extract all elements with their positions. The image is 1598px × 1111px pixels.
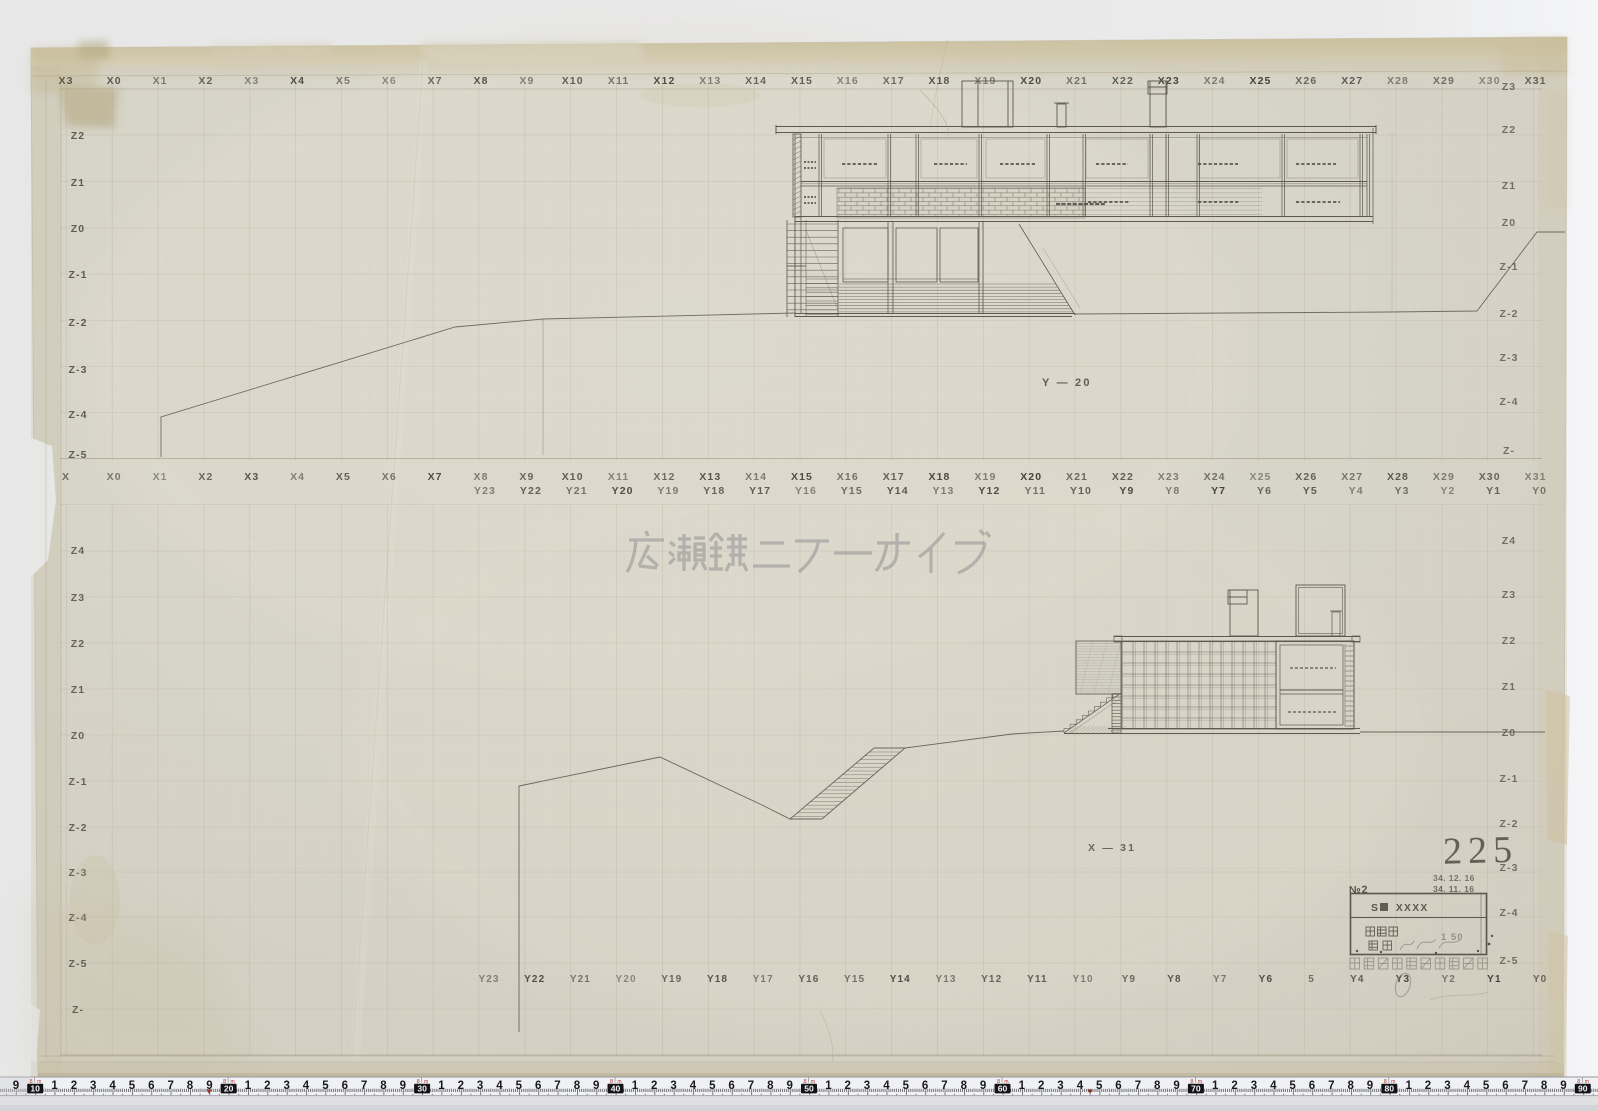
- svg-text:9: 9: [13, 1080, 19, 1092]
- svg-text:Y2: Y2: [1441, 974, 1455, 985]
- svg-text:6: 6: [1309, 1080, 1315, 1092]
- svg-text:6: 6: [922, 1080, 928, 1092]
- svg-text:34. 11. 16: 34. 11. 16: [1433, 884, 1474, 894]
- svg-text:1: 1: [1405, 1080, 1412, 1092]
- svg-text:2: 2: [1231, 1080, 1237, 1092]
- svg-text:X9: X9: [519, 75, 534, 87]
- svg-text:Z1: Z1: [71, 684, 85, 696]
- svg-text:X11: X11: [608, 471, 629, 483]
- svg-text:Y7: Y7: [1213, 974, 1227, 985]
- svg-text:Y6: Y6: [1259, 974, 1273, 985]
- svg-text:3: 3: [477, 1080, 483, 1092]
- svg-text:4: 4: [109, 1080, 116, 1092]
- svg-text:Y16: Y16: [795, 485, 817, 497]
- svg-text:3: 3: [1444, 1080, 1450, 1092]
- svg-text:X9: X9: [519, 471, 534, 483]
- svg-text:Y6: Y6: [1257, 485, 1272, 497]
- svg-text:7: 7: [1328, 1080, 1334, 1092]
- svg-text:7: 7: [554, 1080, 560, 1092]
- svg-text:X16: X16: [837, 75, 859, 87]
- svg-text:X2: X2: [198, 471, 213, 483]
- svg-text:2: 2: [844, 1080, 850, 1092]
- svg-text:Z-2: Z-2: [1499, 308, 1518, 320]
- svg-text:8: 8: [1154, 1080, 1161, 1092]
- svg-text:5: 5: [322, 1080, 329, 1092]
- svg-text:Y0: Y0: [1532, 485, 1547, 497]
- svg-text:Z-3: Z-3: [1499, 352, 1518, 364]
- svg-text:1: 1: [1212, 1080, 1219, 1092]
- svg-text:Z0: Z0: [71, 730, 85, 742]
- svg-text:X3: X3: [244, 75, 259, 87]
- svg-text:X17: X17: [883, 471, 905, 483]
- svg-text:Y21: Y21: [570, 974, 591, 985]
- svg-text:X7: X7: [428, 75, 443, 87]
- svg-text:XXXX: XXXX: [1396, 903, 1429, 914]
- svg-text:10: 10: [30, 1084, 40, 1094]
- svg-text:Y19: Y19: [657, 485, 679, 497]
- svg-text:7: 7: [941, 1080, 947, 1092]
- svg-text:Z1: Z1: [1502, 180, 1516, 192]
- svg-text:Z2: Z2: [71, 130, 85, 142]
- svg-text:2: 2: [458, 1080, 464, 1092]
- svg-text:X: X: [62, 471, 70, 483]
- svg-text:X21: X21: [1066, 75, 1088, 87]
- svg-text:Y15: Y15: [844, 974, 865, 985]
- svg-text:3: 3: [1057, 1080, 1063, 1092]
- svg-text:X20: X20: [1020, 471, 1042, 483]
- svg-text:X28: X28: [1387, 471, 1409, 483]
- svg-text:Y10: Y10: [1073, 974, 1094, 985]
- svg-text:№2: №2: [1349, 884, 1369, 897]
- svg-text:4: 4: [1077, 1080, 1084, 1092]
- svg-text:X18: X18: [929, 471, 951, 483]
- svg-text:Y1: Y1: [1486, 485, 1501, 497]
- svg-text:9: 9: [593, 1080, 599, 1092]
- svg-text:6: 6: [148, 1080, 154, 1092]
- svg-text:6: 6: [535, 1080, 541, 1092]
- svg-text:Z4: Z4: [71, 545, 85, 557]
- svg-text:X22: X22: [1112, 471, 1134, 483]
- svg-text:Y4: Y4: [1349, 485, 1364, 497]
- svg-text:2: 2: [651, 1080, 657, 1092]
- svg-text:Y4: Y4: [1350, 974, 1364, 985]
- svg-text:X3: X3: [58, 75, 73, 87]
- svg-text:X11: X11: [608, 75, 629, 87]
- svg-text:X29: X29: [1433, 471, 1455, 483]
- svg-text:Y17: Y17: [753, 974, 774, 985]
- svg-text:4: 4: [496, 1080, 503, 1092]
- svg-text:X1: X1: [153, 75, 168, 87]
- svg-text:Y18: Y18: [707, 974, 728, 985]
- svg-text:6: 6: [1115, 1080, 1121, 1092]
- svg-text:Y18: Y18: [703, 485, 725, 497]
- svg-text:1 50: 1 50: [1441, 932, 1464, 943]
- svg-text:Y12: Y12: [978, 485, 1000, 497]
- svg-text:X7: X7: [428, 471, 443, 483]
- svg-text:X22: X22: [1112, 75, 1134, 87]
- svg-text:Z-2: Z-2: [68, 317, 87, 329]
- svg-text:7: 7: [748, 1080, 754, 1092]
- svg-text:Z0: Z0: [1502, 727, 1516, 739]
- svg-text:7: 7: [1522, 1080, 1528, 1092]
- svg-text:Y9: Y9: [1119, 485, 1134, 497]
- svg-text:1: 1: [825, 1080, 832, 1092]
- svg-text:5: 5: [516, 1080, 523, 1092]
- svg-text:8: 8: [767, 1080, 774, 1092]
- svg-text:Z-: Z-: [72, 1004, 84, 1016]
- svg-text:60: 60: [998, 1084, 1008, 1094]
- svg-text:X20: X20: [1020, 75, 1042, 87]
- svg-text:Z2: Z2: [71, 638, 85, 650]
- svg-text:X5: X5: [336, 75, 351, 87]
- svg-text:9: 9: [786, 1080, 792, 1092]
- svg-text:Y19: Y19: [661, 974, 682, 985]
- svg-text:X4: X4: [290, 471, 305, 483]
- svg-text:X18: X18: [929, 75, 951, 87]
- svg-text:50: 50: [804, 1084, 814, 1094]
- svg-text:4: 4: [303, 1080, 310, 1092]
- svg-text:3: 3: [1251, 1080, 1257, 1092]
- svg-text:80: 80: [1385, 1084, 1395, 1094]
- svg-text:Z-2: Z-2: [68, 822, 87, 834]
- svg-text:Y14: Y14: [890, 974, 911, 985]
- svg-text:Y3: Y3: [1394, 485, 1409, 497]
- svg-text:3: 3: [864, 1080, 870, 1092]
- svg-text:1: 1: [1019, 1080, 1026, 1092]
- svg-text:2: 2: [1425, 1080, 1431, 1092]
- svg-text:Z-4: Z-4: [68, 409, 87, 421]
- svg-text:Z3: Z3: [1502, 81, 1516, 93]
- svg-text:X5: X5: [336, 471, 351, 483]
- svg-text:5: 5: [1096, 1080, 1103, 1092]
- svg-text:4: 4: [1464, 1080, 1471, 1092]
- svg-text:Z-1: Z-1: [1499, 261, 1518, 273]
- svg-text:Z1: Z1: [71, 177, 85, 189]
- svg-text:X23: X23: [1158, 471, 1180, 483]
- svg-text:7: 7: [167, 1080, 173, 1092]
- svg-text:6: 6: [1502, 1080, 1508, 1092]
- svg-text:Y11: Y11: [1024, 485, 1045, 497]
- svg-text:9: 9: [1367, 1080, 1373, 1092]
- svg-text:90: 90: [1578, 1084, 1588, 1094]
- svg-text:Z-1: Z-1: [68, 269, 87, 281]
- svg-text:Y13: Y13: [935, 974, 956, 985]
- svg-text:X13: X13: [699, 471, 721, 483]
- svg-text:S: S: [1371, 902, 1379, 914]
- svg-text:30: 30: [417, 1084, 427, 1094]
- svg-text:X2: X2: [198, 75, 213, 87]
- svg-text:Y1: Y1: [1487, 974, 1501, 985]
- svg-text:Z3: Z3: [71, 592, 85, 604]
- svg-text:1: 1: [438, 1080, 445, 1092]
- svg-text:Z-4: Z-4: [1499, 907, 1518, 919]
- svg-text:X4: X4: [290, 75, 305, 87]
- svg-text:X31: X31: [1525, 471, 1547, 483]
- svg-text:3: 3: [90, 1080, 96, 1092]
- svg-text:8: 8: [1347, 1080, 1354, 1092]
- svg-text:3: 3: [283, 1080, 289, 1092]
- svg-text:4: 4: [690, 1080, 697, 1092]
- svg-text:X26: X26: [1295, 471, 1317, 483]
- svg-text:X31: X31: [1525, 75, 1547, 87]
- svg-text:8: 8: [187, 1080, 194, 1092]
- svg-text:X15: X15: [791, 75, 813, 87]
- svg-text:8: 8: [380, 1080, 387, 1092]
- svg-text:X24: X24: [1204, 471, 1226, 483]
- svg-text:225: 225: [1442, 829, 1518, 873]
- svg-text:Z-5: Z-5: [1499, 955, 1518, 967]
- svg-text:Z-4: Z-4: [1499, 396, 1518, 408]
- svg-text:9: 9: [980, 1080, 986, 1092]
- svg-text:X19: X19: [974, 471, 996, 483]
- svg-text:4: 4: [1270, 1080, 1277, 1092]
- svg-text:Y20: Y20: [616, 974, 637, 985]
- svg-text:X8: X8: [473, 75, 488, 87]
- svg-text:X8: X8: [473, 471, 488, 483]
- svg-text:X26: X26: [1295, 75, 1317, 87]
- svg-text:Y10: Y10: [1070, 485, 1092, 497]
- svg-text:Y7: Y7: [1211, 485, 1226, 497]
- svg-text:X10: X10: [562, 75, 584, 87]
- svg-text:1: 1: [51, 1080, 58, 1092]
- svg-text:Y8: Y8: [1165, 485, 1180, 497]
- svg-text:2: 2: [71, 1080, 77, 1092]
- svg-text:X29: X29: [1433, 75, 1455, 87]
- svg-text:X30: X30: [1479, 471, 1501, 483]
- svg-text:5: 5: [1308, 974, 1315, 985]
- svg-text:5: 5: [1289, 1080, 1296, 1092]
- svg-text:Z-1: Z-1: [1499, 773, 1518, 785]
- svg-text:6: 6: [728, 1080, 734, 1092]
- svg-text:Y22: Y22: [524, 974, 545, 985]
- svg-text:Z-: Z-: [1503, 445, 1515, 457]
- svg-text:X28: X28: [1387, 75, 1409, 87]
- svg-text:3: 3: [670, 1080, 676, 1092]
- svg-text:20: 20: [224, 1084, 234, 1094]
- svg-text:X14: X14: [745, 75, 767, 87]
- svg-text:Y22: Y22: [520, 485, 542, 497]
- svg-text:2: 2: [264, 1080, 270, 1092]
- svg-text:6: 6: [342, 1080, 348, 1092]
- svg-text:Y14: Y14: [887, 485, 909, 497]
- svg-text:X25: X25: [1250, 471, 1272, 483]
- svg-text:4: 4: [883, 1080, 890, 1092]
- svg-text:Y0: Y0: [1533, 974, 1547, 985]
- svg-text:X10: X10: [562, 471, 584, 483]
- svg-text:40: 40: [611, 1084, 621, 1094]
- svg-text:X16: X16: [837, 471, 859, 483]
- svg-text:Y — 20: Y — 20: [1042, 377, 1092, 389]
- svg-text:Y2: Y2: [1440, 485, 1455, 497]
- svg-text:34. 12. 16: 34. 12. 16: [1433, 873, 1475, 883]
- svg-text:X24: X24: [1204, 75, 1226, 87]
- svg-text:Y16: Y16: [798, 974, 819, 985]
- svg-text:Y12: Y12: [981, 974, 1002, 985]
- svg-text:Y17: Y17: [749, 485, 771, 497]
- svg-text:X12: X12: [653, 471, 675, 483]
- svg-text:8: 8: [574, 1080, 581, 1092]
- svg-text:5: 5: [129, 1080, 136, 1092]
- svg-text:Z4: Z4: [1502, 535, 1516, 547]
- svg-text:1: 1: [632, 1080, 639, 1092]
- svg-text:Y23: Y23: [474, 485, 496, 497]
- svg-text:Z0: Z0: [1502, 217, 1516, 229]
- svg-text:9: 9: [400, 1080, 406, 1092]
- svg-text:X17: X17: [883, 75, 905, 87]
- svg-text:X30: X30: [1479, 75, 1501, 87]
- svg-text:8: 8: [961, 1080, 968, 1092]
- svg-text:X0: X0: [107, 471, 122, 483]
- svg-text:1: 1: [245, 1080, 252, 1092]
- svg-text:Z0: Z0: [71, 223, 85, 235]
- svg-text:Z2: Z2: [1502, 635, 1516, 647]
- svg-text:X — 31: X — 31: [1088, 842, 1136, 854]
- svg-text:Z-5: Z-5: [68, 958, 87, 970]
- svg-text:Y5: Y5: [1303, 485, 1318, 497]
- svg-text:Y15: Y15: [841, 485, 863, 497]
- svg-text:X0: X0: [107, 75, 122, 87]
- svg-text:9: 9: [1173, 1080, 1179, 1092]
- svg-text:X3: X3: [244, 471, 259, 483]
- svg-text:Z2: Z2: [1502, 124, 1516, 136]
- svg-text:Y8: Y8: [1167, 974, 1181, 985]
- svg-text:X15: X15: [791, 471, 813, 483]
- svg-text:Y9: Y9: [1122, 974, 1136, 985]
- svg-text:8: 8: [1541, 1080, 1548, 1092]
- svg-text:Z-1: Z-1: [68, 776, 87, 788]
- svg-text:Z-5: Z-5: [68, 449, 87, 461]
- svg-text:X1: X1: [153, 471, 168, 483]
- svg-text:X25: X25: [1250, 75, 1272, 87]
- svg-text:7: 7: [1135, 1080, 1141, 1092]
- svg-text:Z1: Z1: [1502, 681, 1516, 693]
- svg-text:2: 2: [1038, 1080, 1044, 1092]
- svg-text:X27: X27: [1341, 75, 1363, 87]
- svg-text:X21: X21: [1066, 471, 1088, 483]
- svg-text:7: 7: [361, 1080, 367, 1092]
- svg-text:Y23: Y23: [478, 974, 499, 985]
- svg-text:Z3: Z3: [1502, 589, 1516, 601]
- svg-text:5: 5: [1483, 1080, 1490, 1092]
- svg-text:X6: X6: [382, 75, 397, 87]
- svg-text:Y13: Y13: [933, 485, 955, 497]
- svg-text:Z-3: Z-3: [68, 364, 87, 376]
- svg-text:70: 70: [1191, 1084, 1201, 1094]
- svg-text:Y20: Y20: [612, 485, 634, 497]
- svg-text:Y21: Y21: [566, 485, 588, 497]
- svg-text:X6: X6: [382, 471, 397, 483]
- svg-text:9: 9: [1560, 1080, 1566, 1092]
- svg-text:X27: X27: [1341, 471, 1363, 483]
- svg-text:X14: X14: [745, 471, 767, 483]
- svg-text:Y11: Y11: [1027, 974, 1048, 985]
- svg-text:5: 5: [903, 1080, 910, 1092]
- svg-text:5: 5: [709, 1080, 716, 1092]
